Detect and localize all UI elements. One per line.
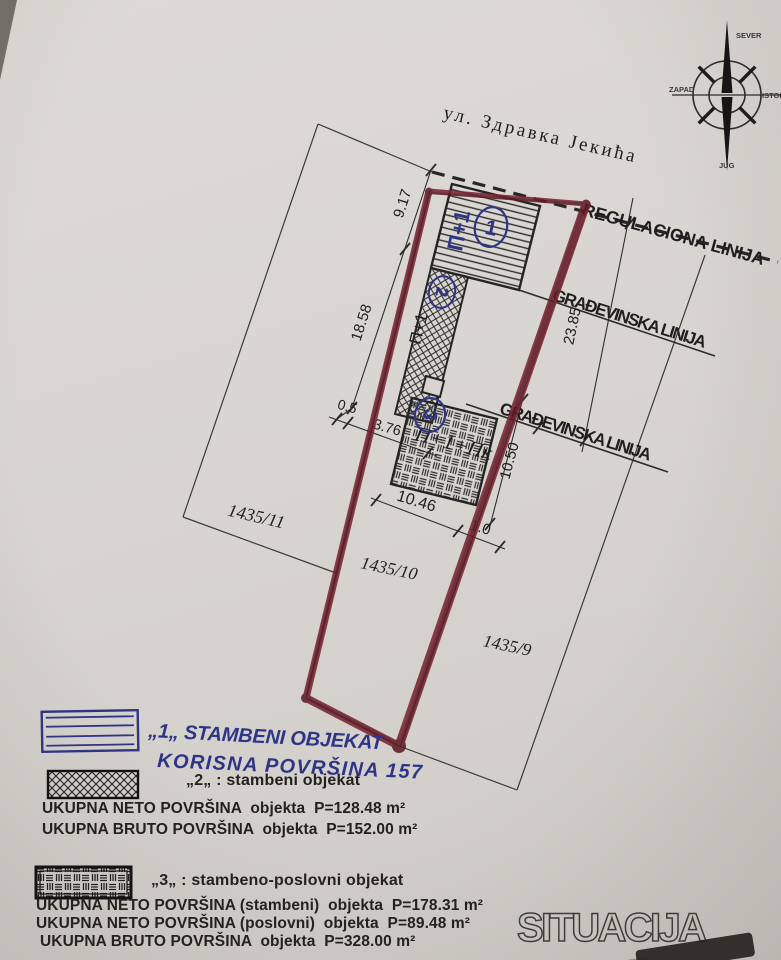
handwritten-legend-line1: „1„ STAMBENI OBJEKAT [147,720,386,754]
dim-18-58: 18.58 [348,302,376,343]
dim-23-85: 23.85 [560,306,584,346]
dim-9-17: 9.17 [390,187,415,220]
legend-2-net-area: UKUPNA NETO POVRŠINA objekta P=128.48 m² [42,800,405,818]
scanned-site-plan: ул. Здравка Јекића REGULACIONA LINIJA GR… [0,0,781,960]
legend-3-swatch [36,867,131,898]
drawing-labels: ул. Здравка Јекића REGULACIONA LINIJA GR… [226,102,767,660]
building-notch [422,376,444,397]
regulation-line-label: REGULACIONA LINIJA [580,199,767,269]
legend-3-title: „3„ : stambeno-poslovni objekat [151,872,403,890]
compass-east-label: ISTOK [762,91,781,100]
compass-west-label: ZAPAD [669,85,695,94]
street-name-label: ул. Здравка Јекића [441,102,637,167]
legend-2-swatch [48,771,138,798]
legend-1-swatch [42,710,139,752]
drawing-title: SITUACIJA [517,906,709,950]
legend-3-net-residential: UKUPNA NETO POVRŠINA (stambeni) objekta … [36,897,483,915]
parcel-label-1435-10: 1435/10 [359,552,420,584]
legend-2-title: „2„ : stambeni objekat [186,772,360,790]
compass-south-label: JUG [719,161,735,170]
building-line-lower-label: GRAĐEVINSKA LINIJA [497,399,653,465]
scan-corner-shadow [0,0,17,80]
dim-0-5: 0.5 [336,396,359,417]
compass-north-label: SEVER [736,31,762,40]
parcel-label-1435-11: 1435/11 [226,500,287,532]
legend-2-gross-area: UKUPNA BRUTO POVRŠINA objekta P=152.00 m… [42,821,417,839]
legend-3-net-business: UKUPNA NETO POVRŠINA (poslovni) objekta … [36,915,470,933]
compass-rose-icon: SEVER ZAPAD ISTOK JUG [669,20,781,171]
parcel-label-1435-9: 1435/9 [481,630,533,660]
legend-3-gross-area: UKUPNA BRUTO POVRŠINA objekta P=328.00 m… [40,933,415,951]
